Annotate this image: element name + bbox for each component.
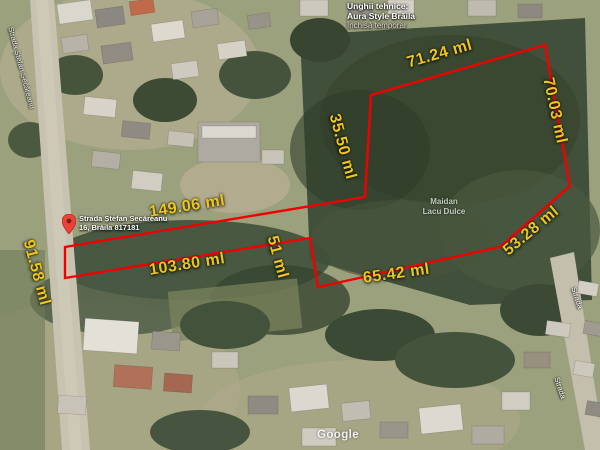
business-label[interactable]: Unghii tehnice: Aura Style Brăila Închis… — [347, 1, 415, 31]
business-name-line1: Unghii tehnice: — [347, 1, 415, 11]
address-pin[interactable]: Strada Ștefan Secăreanu 16, Brăila 81718… — [62, 214, 167, 234]
google-watermark: Google — [317, 430, 359, 440]
business-name-line2: Aura Style Brăila — [347, 11, 415, 21]
area-label: Maidan Lacu Dulce — [408, 197, 480, 217]
business-status: Închisă temporar — [347, 21, 415, 31]
pin-address-label: Strada Ștefan Secăreanu 16, Brăila 81718… — [79, 214, 167, 232]
map-pin-icon[interactable] — [62, 214, 76, 234]
satellite-map-canvas[interactable]: 71.24 ml 70.03 ml 35.50 ml 149.06 ml 103… — [0, 0, 600, 450]
